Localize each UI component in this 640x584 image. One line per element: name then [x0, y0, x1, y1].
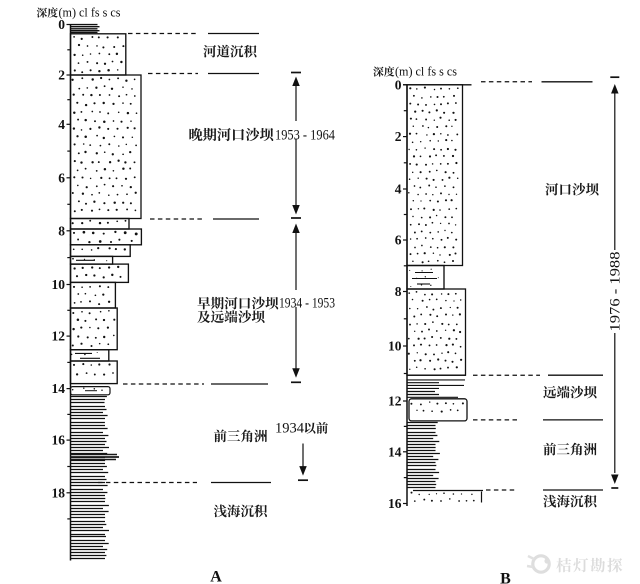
svg-text:16: 16 [52, 433, 66, 448]
svg-text:0: 0 [58, 17, 65, 32]
svg-text:18: 18 [52, 485, 66, 500]
svg-text:14: 14 [388, 444, 402, 459]
svg-text:4: 4 [395, 182, 402, 197]
svg-text:12: 12 [52, 329, 66, 344]
svg-text:2: 2 [58, 68, 65, 83]
svg-text:10: 10 [388, 339, 402, 354]
svg-text:8: 8 [58, 223, 65, 238]
svg-text:12: 12 [388, 394, 402, 409]
svg-text:0: 0 [395, 77, 402, 92]
svg-text:6: 6 [58, 170, 65, 185]
svg-text:10: 10 [52, 277, 66, 292]
svg-text:8: 8 [395, 284, 402, 299]
svg-text:(m) cl fs s cs: (m) cl fs s cs [395, 64, 457, 78]
svg-text:(m) cl fs s cs: (m) cl fs s cs [59, 5, 121, 19]
svg-text:6: 6 [395, 233, 402, 248]
svg-text:16: 16 [388, 496, 402, 511]
svg-text:1976 - 1988: 1976 - 1988 [607, 252, 623, 332]
svg-text:14: 14 [52, 381, 66, 396]
svg-text:B: B [500, 571, 511, 584]
svg-text:1934: 1934 [275, 420, 305, 436]
svg-text:1953 - 1964: 1953 - 1964 [275, 127, 335, 143]
svg-text:1934 - 1953: 1934 - 1953 [279, 296, 335, 312]
svg-text:A: A [210, 569, 222, 584]
svg-text:2: 2 [395, 129, 402, 144]
svg-text:4: 4 [58, 117, 65, 132]
